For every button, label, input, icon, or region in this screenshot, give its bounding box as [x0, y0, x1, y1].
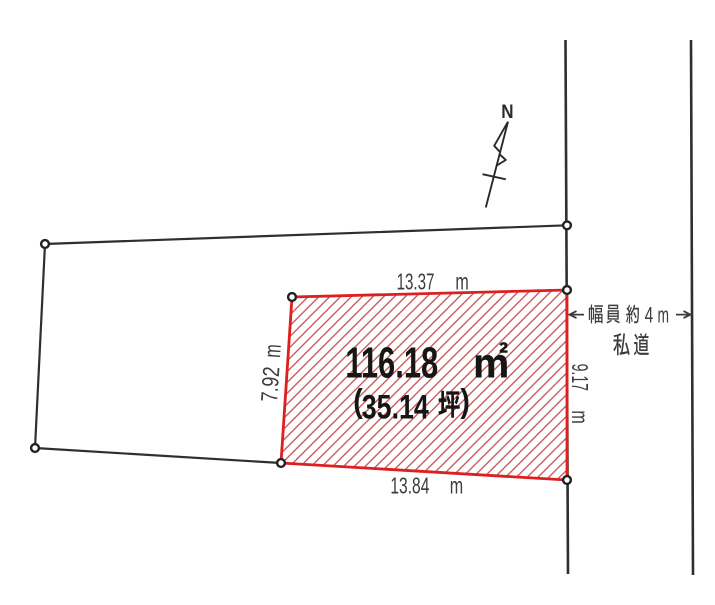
svg-text:m: m: [259, 343, 286, 358]
svg-text:35.14: 35.14: [362, 388, 429, 426]
svg-text:N: N: [501, 102, 513, 123]
svg-text:9.17: 9.17: [567, 364, 593, 391]
svg-text:13.37: 13.37: [397, 269, 435, 295]
svg-text:m: m: [450, 472, 463, 498]
svg-text:m: m: [455, 269, 468, 295]
svg-text:116.18: 116.18: [345, 340, 438, 388]
svg-text:m: m: [658, 302, 670, 327]
svg-text:): ): [460, 382, 470, 419]
svg-text:13.84: 13.84: [390, 472, 429, 498]
svg-text:4: 4: [645, 302, 654, 327]
svg-text:m: m: [567, 410, 593, 423]
svg-text:7.92: 7.92: [256, 366, 284, 403]
